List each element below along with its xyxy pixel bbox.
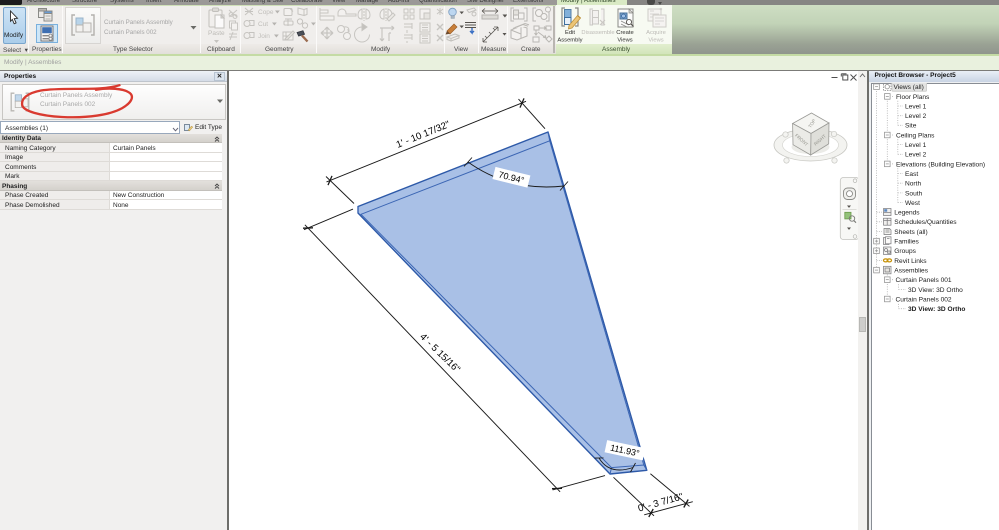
svg-text:0' - 3 7/16": 0' - 3 7/16"	[637, 491, 685, 514]
svg-text:North: North	[905, 181, 921, 188]
svg-text:East: East	[905, 171, 918, 178]
svg-text:Floor Plans: Floor Plans	[896, 94, 930, 101]
svg-text:West: West	[905, 200, 920, 207]
svg-text:Schedules/Quantities: Schedules/Quantities	[894, 219, 957, 226]
svg-text:Legends: Legends	[894, 210, 920, 217]
svg-text:Create: Create	[616, 30, 633, 36]
svg-text:3D View: 3D Ortho: 3D View: 3D Ortho	[908, 287, 963, 294]
svg-text:Edit: Edit	[565, 30, 575, 36]
svg-text:Site: Site	[905, 123, 917, 130]
svg-text:Views: Views	[648, 38, 663, 44]
svg-text:South: South	[905, 190, 923, 197]
svg-text:Disassemble: Disassemble	[581, 30, 614, 36]
svg-text:Views (all): Views (all)	[894, 84, 924, 91]
svg-text:Curtain Panels 002: Curtain Panels 002	[896, 296, 952, 303]
svg-text:4' - 5 15/16": 4' - 5 15/16"	[417, 331, 462, 375]
svg-text:Level 2: Level 2	[905, 113, 927, 120]
svg-text:Assemblies: Assemblies	[894, 268, 928, 275]
svg-text:Revit Links: Revit Links	[894, 258, 927, 265]
svg-text:Assembly: Assembly	[557, 38, 582, 44]
svg-text:Views: Views	[617, 38, 632, 44]
svg-text:Level 2: Level 2	[905, 152, 927, 159]
svg-text:Curtain Panels 001: Curtain Panels 001	[896, 277, 952, 284]
svg-text:Level 1: Level 1	[905, 142, 927, 149]
svg-text:Level 1: Level 1	[905, 103, 927, 110]
svg-text:Elevations (Building Elevation: Elevations (Building Elevation)	[896, 161, 985, 168]
svg-text:3D View: 3D Ortho: 3D View: 3D Ortho	[908, 306, 965, 313]
svg-text:Join: Join	[258, 33, 270, 40]
svg-text:Groups: Groups	[894, 248, 916, 255]
svg-text:Sheets (all): Sheets (all)	[894, 229, 927, 236]
svg-text:Families: Families	[894, 239, 919, 246]
svg-text:Ceiling Plans: Ceiling Plans	[896, 132, 935, 139]
svg-text:Acquire: Acquire	[646, 30, 666, 36]
svg-text:Cope: Cope	[258, 9, 274, 16]
svg-text:Cut: Cut	[258, 21, 268, 28]
